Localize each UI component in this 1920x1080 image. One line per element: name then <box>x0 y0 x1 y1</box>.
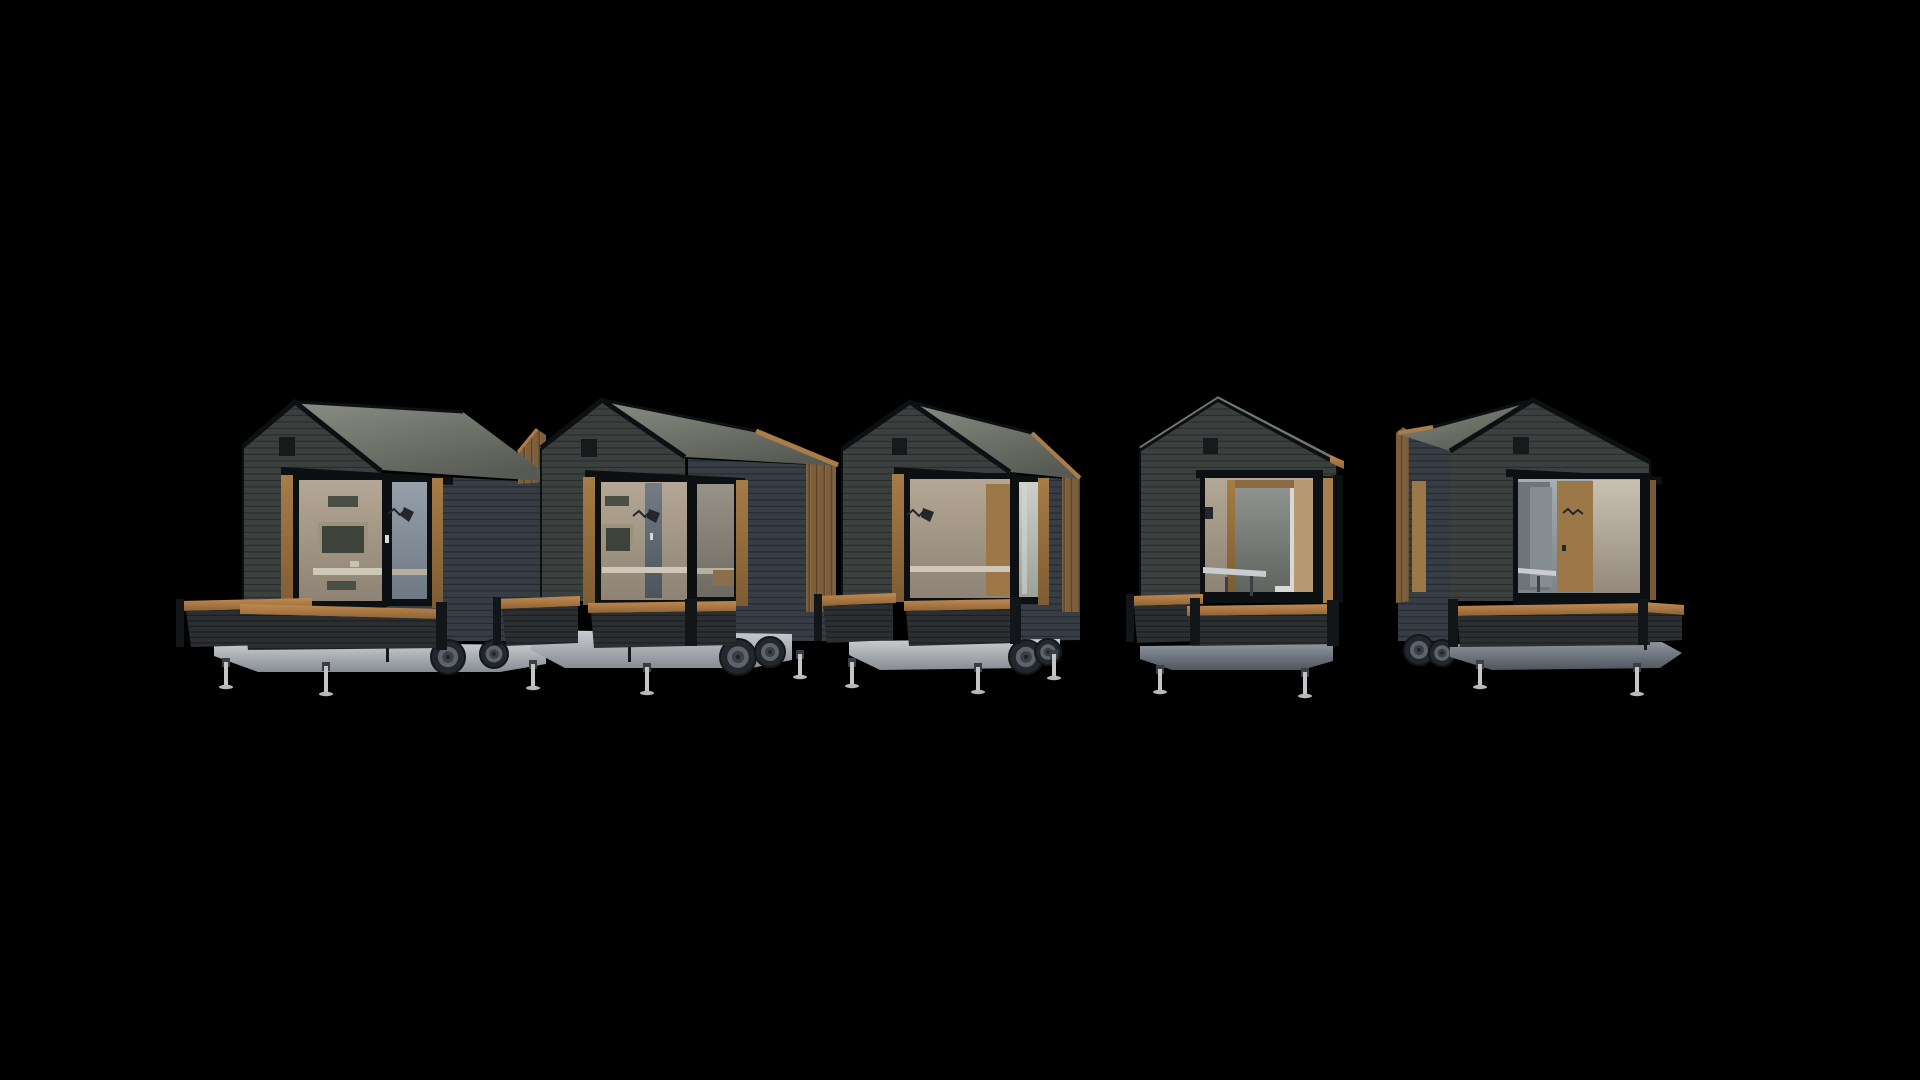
interior-door <box>645 483 662 598</box>
jack-leg-1 <box>845 684 859 688</box>
planter-right-body <box>1645 612 1682 642</box>
planter-front-body <box>906 609 1016 646</box>
tiny-house-2 <box>493 400 840 695</box>
window-glass-side <box>392 482 427 599</box>
tiny-house-1 <box>176 402 557 696</box>
oak-reveal-left <box>1227 480 1235 592</box>
interior-pale-panel <box>1593 480 1640 593</box>
jack-leg-2 <box>971 690 985 694</box>
jack-leg-3 <box>1047 676 1061 680</box>
gable-vent <box>1203 438 1218 454</box>
interior-wall <box>1294 480 1313 592</box>
desk-shelf-side <box>392 569 427 575</box>
gable-vent <box>892 438 907 455</box>
jack-leg-2 <box>1630 692 1644 696</box>
window-trim-left <box>281 475 293 611</box>
planter-left-body <box>823 603 893 643</box>
wheel-1 <box>1024 655 1028 659</box>
tv-screen <box>322 526 364 553</box>
wheel-2 <box>1046 650 1049 653</box>
window-trim-left <box>892 474 904 602</box>
gable-vent <box>581 439 597 457</box>
tiny-house-render <box>0 0 1920 1080</box>
render-viewport <box>0 0 1920 1080</box>
window-trim-right <box>1038 478 1049 605</box>
light-switch <box>350 561 359 567</box>
jack-leg-2 <box>319 692 333 696</box>
planter-left-post <box>176 599 184 647</box>
tiny-house-5 <box>1396 400 1684 696</box>
gable-vent <box>1513 437 1529 454</box>
rear-window-frame <box>1290 488 1294 592</box>
jack-leg-2 <box>640 691 654 695</box>
planter-front-rail <box>904 599 1016 611</box>
tv-screen <box>606 528 630 551</box>
table-leg-2 <box>1250 576 1253 596</box>
planter-left-post <box>1126 594 1134 642</box>
interior-doorway <box>986 484 1010 596</box>
desk-shelf <box>910 566 1010 572</box>
table-leg-1 <box>1225 577 1228 592</box>
jack-leg-3 <box>793 675 807 679</box>
wheel-1 <box>446 655 450 659</box>
desk-shelf <box>313 568 382 575</box>
planter-post-2 <box>1638 599 1648 645</box>
kitchen-counter <box>713 570 734 586</box>
planter-front-body <box>1457 613 1650 647</box>
planter-front-body <box>1189 614 1337 646</box>
window-trim-right <box>432 478 443 608</box>
planter-corner-post <box>436 602 447 650</box>
door-handle <box>1562 545 1566 551</box>
planter-left-post <box>814 594 822 641</box>
planter-left-body <box>502 606 578 646</box>
jack-leg-1 <box>1153 690 1167 694</box>
planter-front-rail <box>1187 604 1337 616</box>
under-shelf-box <box>327 581 356 590</box>
planter-corner-post <box>685 599 697 646</box>
window-trim-right <box>1323 478 1333 603</box>
rear-gable-slats <box>806 453 836 612</box>
jack-leg-2 <box>1298 694 1312 698</box>
wall-picture <box>605 496 629 506</box>
rear-gable-slats <box>1062 458 1080 612</box>
jack-leg-1 <box>219 685 233 689</box>
planter-post-2 <box>1327 600 1339 646</box>
rear-gable-slats <box>1396 427 1409 603</box>
table-leg <box>1537 576 1540 592</box>
tiny-house-3 <box>814 402 1080 694</box>
jack-leg-1 <box>526 686 540 690</box>
wheel-2 <box>768 650 772 654</box>
corner-shadow <box>1333 475 1343 603</box>
planter-front-rail <box>588 601 736 613</box>
lamp-silhouette <box>1205 507 1213 519</box>
door-handle <box>650 533 653 540</box>
trailer-frame <box>1140 644 1333 670</box>
wheel-2 <box>492 652 496 656</box>
door-handle <box>385 535 389 543</box>
window-trim-right <box>736 480 748 606</box>
side-door <box>1412 481 1426 592</box>
window-trim-left <box>583 477 595 605</box>
planter-left-post <box>493 597 501 645</box>
planter-corner-post <box>1010 597 1021 644</box>
desk-shelf <box>602 567 687 573</box>
planter-front-body <box>244 614 443 650</box>
planter-front-body <box>591 611 736 648</box>
wheel-2 <box>1440 651 1443 654</box>
wheel-1 <box>736 655 741 660</box>
window-trim-right <box>1650 480 1656 600</box>
gable-vent <box>279 437 295 456</box>
tiny-house-4 <box>1126 398 1344 698</box>
planter-post-1 <box>1190 598 1200 645</box>
interior-oak-door <box>1557 481 1593 592</box>
wheel-1 <box>1417 648 1421 652</box>
planter-post-1 <box>1448 599 1458 647</box>
floor-item <box>1275 586 1293 592</box>
wall-picture <box>328 496 358 507</box>
jack-leg-1 <box>1473 685 1487 689</box>
glass-glare <box>1022 484 1027 594</box>
